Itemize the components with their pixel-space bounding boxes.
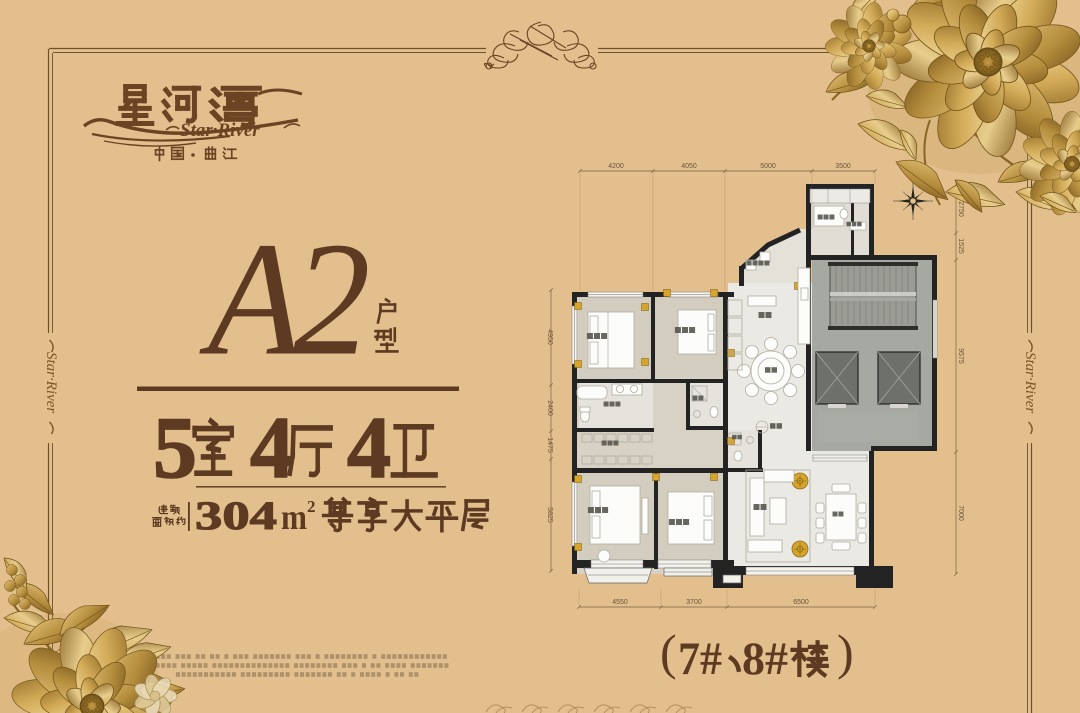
- svg-text:2750: 2750: [957, 201, 964, 217]
- svg-text:5000: 5000: [760, 163, 776, 170]
- svg-text:3500: 3500: [835, 163, 851, 170]
- svg-text:m: m: [281, 497, 307, 537]
- svg-text:304: 304: [195, 493, 277, 538]
- svg-text:4: 4: [250, 400, 294, 497]
- svg-text:A2: A2: [199, 209, 368, 389]
- svg-text:4950: 4950: [546, 329, 553, 345]
- svg-text:6500: 6500: [793, 599, 809, 606]
- svg-text:3700: 3700: [686, 599, 702, 606]
- svg-text:4: 4: [347, 400, 391, 497]
- svg-text:4050: 4050: [681, 163, 697, 170]
- svg-text:Star·River: Star·River: [1022, 352, 1038, 413]
- svg-text:2: 2: [307, 497, 316, 516]
- svg-text:2400: 2400: [546, 400, 553, 416]
- svg-text:5825: 5825: [546, 507, 553, 523]
- svg-text:4200: 4200: [608, 163, 624, 170]
- svg-text:7#: 7#: [678, 633, 722, 685]
- svg-text:5: 5: [153, 400, 197, 497]
- svg-text:9575: 9575: [957, 348, 964, 364]
- svg-text:8#: 8#: [742, 633, 788, 685]
- svg-text:1475: 1475: [546, 437, 553, 453]
- svg-text:Star·River: Star·River: [180, 120, 260, 141]
- svg-text:1525: 1525: [957, 238, 964, 254]
- svg-text:7000: 7000: [957, 505, 964, 521]
- svg-text:(: (: [660, 624, 677, 680]
- svg-text:): ): [837, 624, 854, 680]
- svg-text:Star·River: Star·River: [43, 352, 59, 413]
- svg-text:4550: 4550: [612, 599, 628, 606]
